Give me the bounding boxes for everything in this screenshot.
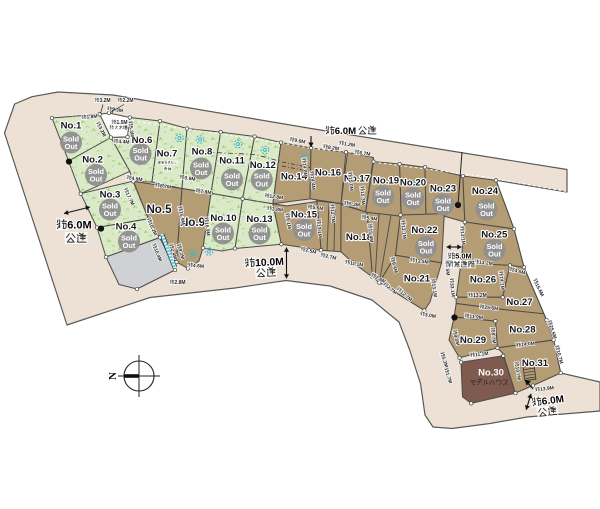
svg-text:No.25: No.25 [481, 230, 508, 241]
svg-text:No.7: No.7 [157, 149, 178, 160]
svg-text:12.7M: 12.7M [329, 209, 336, 223]
svg-text:No.30: No.30 [478, 368, 504, 379]
svg-text:Out: Out [134, 154, 147, 163]
svg-text:No.13: No.13 [246, 214, 272, 225]
svg-text:Out: Out [407, 198, 420, 207]
svg-text:Out: Out [65, 142, 78, 151]
svg-text:4.4M: 4.4M [118, 139, 129, 146]
svg-text:No.1: No.1 [61, 121, 82, 132]
svg-text:Out: Out [226, 179, 239, 188]
svg-text:No.28: No.28 [509, 325, 536, 336]
svg-text:Out: Out [437, 204, 450, 213]
svg-text:Out: Out [255, 179, 268, 188]
svg-text:No.19: No.19 [373, 176, 399, 187]
svg-text:6.0M: 6.0M [335, 126, 356, 137]
svg-text:Out: Out [420, 247, 433, 256]
svg-text:Out: Out [488, 250, 501, 259]
svg-text:Out: Out [480, 209, 493, 218]
svg-text:No.10: No.10 [210, 213, 236, 224]
svg-text:Out: Out [90, 175, 103, 184]
svg-text:No.5: No.5 [146, 203, 172, 216]
svg-text:No.23: No.23 [430, 184, 456, 195]
svg-text:No.2: No.2 [82, 155, 103, 166]
svg-text:No.15: No.15 [291, 210, 318, 221]
svg-text:No.11: No.11 [219, 156, 245, 167]
svg-text:No.31: No.31 [522, 358, 549, 369]
svg-text:No.4: No.4 [116, 222, 137, 233]
svg-text:Out: Out [217, 233, 230, 242]
svg-text:2.2M: 2.2M [122, 98, 133, 104]
svg-text:Out: Out [298, 230, 311, 239]
svg-text:13.2M: 13.2M [473, 293, 487, 299]
svg-text:5.0M: 5.0M [455, 252, 471, 261]
svg-text:No.29: No.29 [460, 335, 486, 346]
svg-text:3.2M: 3.2M [99, 98, 110, 104]
svg-text:No.3: No.3 [100, 190, 121, 201]
svg-text:1.8M: 1.8M [86, 114, 98, 121]
svg-text:No.12: No.12 [250, 160, 276, 171]
svg-text:Out: Out [123, 241, 136, 250]
svg-text:No.24: No.24 [472, 186, 499, 197]
svg-text:No.16: No.16 [315, 168, 341, 179]
svg-text:No.22: No.22 [411, 225, 437, 236]
svg-text:No.20: No.20 [400, 178, 426, 189]
svg-text:N: N [107, 372, 119, 380]
svg-text:No.26: No.26 [470, 275, 496, 286]
svg-text:8.7M: 8.7M [489, 332, 496, 344]
svg-text:Out: Out [253, 233, 266, 242]
svg-text:2.8M: 2.8M [174, 280, 185, 286]
svg-text:Out: Out [377, 196, 390, 205]
svg-text:Out: Out [104, 209, 117, 218]
svg-text:No.27: No.27 [506, 297, 532, 308]
svg-text:No.8: No.8 [192, 147, 213, 158]
svg-text:No.21: No.21 [404, 274, 431, 285]
svg-text:4.6M: 4.6M [193, 263, 205, 270]
svg-text:6.0M: 6.0M [67, 219, 91, 231]
svg-text:Out: Out [195, 168, 208, 177]
